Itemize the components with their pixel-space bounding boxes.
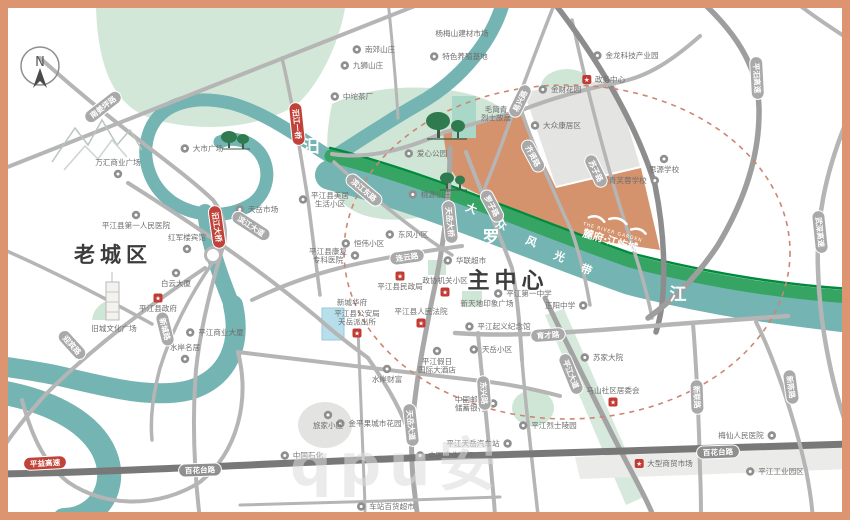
poi: 平江县民政局★: [377, 272, 423, 292]
poi-label: 金平果城市花园: [348, 418, 401, 428]
poi-label: 中坨茶厂: [343, 91, 374, 101]
poi-marker-dot-icon: [344, 242, 347, 245]
roundabout: [206, 248, 221, 263]
river-name-char: 罗: [483, 228, 500, 248]
poi-marker-dot-icon: [472, 348, 475, 351]
poi-label: 桃源山庄: [421, 189, 452, 199]
poi: 红军楼宾馆: [168, 232, 206, 253]
star-glyph-icon: ★: [354, 330, 360, 338]
poi-label: 平江工业园区: [758, 466, 804, 476]
poi-label: 颐青芙蓉学校: [601, 175, 647, 185]
poi-marker-dot-icon: [436, 350, 439, 353]
poi-marker-dot-icon: [433, 55, 436, 58]
poi: 天岳小区: [470, 344, 513, 354]
poi-label: 苏家大院: [593, 352, 624, 362]
poi: 政务中心★: [582, 74, 625, 84]
poi-label: 大众康居区: [543, 120, 581, 130]
road-pill-label: 百花台路: [703, 446, 734, 457]
poi: 爱心公园: [405, 149, 448, 158]
poi: 新天地印象广场: [460, 298, 514, 308]
poi: 大市广场: [181, 143, 224, 153]
road-pill-label: 平益高速: [30, 457, 61, 469]
poi: 平江县第一人民医院: [102, 211, 171, 230]
poi-label: 平江假日国际大酒店: [418, 357, 456, 375]
poi: 金龙科技产业园: [593, 50, 658, 60]
road-pill: 平汨高速: [749, 56, 764, 99]
road-pill: 滨江大道: [230, 209, 273, 243]
poi-marker-dot-icon: [117, 173, 120, 176]
poi-label: 平江县人民法院: [394, 306, 448, 316]
poi-label: 平江县美居生活小区: [311, 190, 349, 209]
district-label: 老城区: [74, 243, 152, 267]
poi-label: 红军楼宾馆: [168, 232, 206, 242]
road-xinlian: [693, 324, 701, 520]
poi-label: 政协机关小区: [422, 275, 468, 285]
road-pill: 连云路: [389, 248, 425, 266]
road-pill: 平益高速: [23, 455, 66, 470]
poi-label: 平江县第一人民医院: [102, 220, 171, 230]
road-yingbin: [5, 268, 205, 445]
poi-label: 杨梅山建材市场: [435, 28, 489, 38]
poi-marker-dot-icon: [360, 505, 363, 508]
poi: 九狮山庄: [341, 60, 384, 70]
poi: 白云大厦: [161, 269, 192, 288]
poi-label: 东风小区: [398, 229, 429, 239]
poi-label: 平江县康复专科医院: [309, 246, 347, 265]
poi-label: 梅仙人民医院: [718, 430, 764, 440]
poi: 平江县政府★: [139, 294, 177, 314]
poi-label: 金龙科技产业园: [605, 50, 658, 60]
poi: 恒伟小区: [342, 238, 385, 248]
poi: 毛简青烈士故居: [481, 104, 512, 123]
poi: 特色养殖基地: [430, 51, 488, 61]
road-pill: 新城路: [155, 311, 176, 348]
poi-label: 白云大厦: [161, 278, 192, 288]
poi-marker-dot-icon: [653, 179, 656, 182]
watermark: qpu安: [290, 431, 504, 499]
road-pill: 武深高速: [811, 210, 828, 254]
road-pill: 迎宾路: [56, 328, 89, 362]
poi-marker-dot-icon: [333, 95, 336, 98]
park-northwest: [96, 8, 345, 127]
poi-label: 思源学校: [649, 164, 680, 174]
poi: 思源学校: [649, 155, 680, 174]
poi-marker-dot-icon: [354, 254, 357, 257]
poi-label: 平江县政府: [139, 303, 177, 313]
poi: 东风小区: [386, 229, 429, 239]
poi-marker-dot-icon: [327, 414, 330, 417]
poi-marker-dot-icon: [407, 152, 410, 155]
poi-label: 平江烈士陵园: [531, 420, 577, 430]
road-mid-south-horizontal: [238, 352, 560, 396]
poi-marker-dot-icon: [534, 124, 537, 127]
poi: 新城华府: [337, 297, 368, 307]
star-glyph-icon: ★: [584, 76, 590, 84]
poi-marker-dot-icon: [186, 248, 189, 251]
location-map: N THE RIVER GARDEN 麓府·江屿城 汨罗江大众风光带 老城区主中…: [0, 0, 850, 520]
road-pill: 东兴路: [476, 375, 491, 410]
poi-marker-dot-icon: [388, 233, 391, 236]
road-pill-label: 新联路: [692, 385, 703, 409]
poi: 华联超市: [444, 255, 487, 265]
poi-marker-dot-icon: [183, 147, 186, 150]
star-glyph-icon: ★: [610, 399, 616, 407]
star-glyph-icon: ★: [418, 320, 424, 328]
poi-label: 车站百货超市: [369, 501, 415, 511]
poi-label: 正阳中学: [545, 300, 576, 310]
poi-label: 金财花园: [551, 84, 581, 94]
star-glyph-icon: ★: [155, 295, 161, 303]
map-canvas: N THE RIVER GARDEN 麓府·江屿城 汨罗江大众风光带 老城区主中…: [0, 0, 850, 520]
poi-label: 政务中心: [595, 74, 626, 84]
star-glyph-icon: ★: [397, 273, 403, 281]
poi-marker-dot-icon: [386, 368, 389, 371]
poi-label: 新城华府: [337, 297, 368, 307]
poi: 平江商业大厦: [186, 327, 244, 337]
poi-label: 大型商贸市场: [647, 458, 693, 468]
poi-marker-dot-icon: [749, 470, 752, 473]
road-pill-label: 育才路: [536, 329, 560, 341]
poi-label: 平江商业大厦: [198, 327, 244, 337]
poi-label: 恒伟小区: [354, 238, 385, 248]
poi-marker-dot-icon: [583, 356, 586, 359]
poi-label: 马山社区居委会: [586, 385, 640, 395]
poi: 中坨茶厂: [331, 91, 374, 101]
road-pill: 百花台路: [696, 445, 739, 459]
river-name-char: 江: [670, 285, 687, 305]
poi-label: 九狮山庄: [353, 60, 384, 70]
poi-marker-dot-icon: [283, 454, 286, 457]
poi: 杨梅山建材市场: [435, 28, 489, 38]
poi: 平江县人民法院★: [394, 306, 448, 328]
road-xinchen: [756, 322, 813, 520]
compass-n: N: [35, 55, 45, 70]
poi-label: 万汇商业广场: [95, 157, 141, 167]
poi-label: 平江县公安局天岳派出所: [334, 308, 380, 327]
poi: 苏家大院: [581, 352, 624, 362]
poi-label: 旧城文化广场: [91, 323, 137, 333]
poi-label: 天岳市场: [248, 204, 279, 214]
road-pill-label: 东兴路: [478, 381, 490, 405]
poi-marker-dot-icon: [446, 259, 449, 262]
poi: 万汇商业广场: [95, 157, 141, 178]
road-pill: 新联路: [690, 379, 704, 414]
poi: 平江县康复专科医院: [309, 246, 359, 265]
poi-marker-dot-icon: [663, 158, 666, 161]
maojianqing-site-block: [452, 96, 476, 138]
poi-label: 南郊山庄: [365, 44, 396, 54]
poi: 正阳中学: [545, 300, 588, 310]
poi-marker-dot-icon: [582, 304, 585, 307]
poi-marker-dot-icon: [355, 48, 358, 51]
poi-marker-dot-icon: [596, 54, 599, 57]
poi-label: 天岳小区: [482, 344, 513, 354]
star-glyph-icon: ★: [636, 460, 642, 468]
poi-label: 水岸财富: [372, 374, 402, 384]
road-pill-label: 平汨高速: [751, 63, 763, 94]
poi-marker-dot-icon: [184, 358, 187, 361]
poi-marker-dot-icon: [302, 198, 305, 201]
poi-marker-dot-icon: [522, 424, 525, 427]
poi: 南郊山庄: [353, 44, 396, 54]
poi-marker-dot-icon: [135, 214, 138, 217]
poi-marker-dot-icon: [238, 208, 241, 211]
poi: 旧城文化广场: [91, 323, 137, 333]
poi-label: 大市广场: [193, 143, 224, 153]
poi: 梅仙人民医院: [718, 430, 776, 440]
poi-label: 水岸名居: [170, 342, 201, 352]
poi-label: 平江第一中学: [506, 288, 552, 298]
poi-marker-dot-icon: [189, 331, 192, 334]
poi-label: 旅家小区: [313, 420, 344, 430]
poi-marker-dot-icon: [541, 88, 544, 91]
road-pill-label: 百花台路: [185, 464, 216, 475]
poi-marker-dot-icon: [506, 442, 509, 445]
poi-marker-dot-icon: [468, 325, 471, 328]
poi: 政协机关小区★: [422, 275, 468, 297]
poi-marker-dot-icon: [497, 292, 500, 295]
poi-marker-dot-icon: [492, 402, 495, 405]
culture-square-tower: [92, 272, 119, 320]
poi-marker-dot-icon: [343, 64, 346, 67]
poi: 平江起义纪念馆: [465, 321, 531, 331]
poi-label: 平江县民政局: [377, 281, 423, 291]
star-glyph-icon: ★: [442, 289, 448, 297]
poi-label: 毛简青烈士故居: [481, 104, 512, 123]
poi-marker-dot-icon: [175, 272, 178, 275]
poi-marker-dot-icon: [411, 193, 414, 196]
poi-label: 特色养殖基地: [442, 51, 488, 61]
road-pill: 南姜坪路: [82, 89, 124, 126]
poi-label: 新天地印象广场: [460, 298, 514, 308]
poi-marker-dot-icon: [770, 434, 773, 437]
road-pill: 育才路: [530, 327, 565, 342]
poi-label: 华联超市: [456, 255, 487, 265]
poi-label: 爱心公园: [417, 149, 447, 158]
poi-label: 平江起义纪念馆: [477, 321, 531, 331]
road-pill: 百花台路: [178, 463, 221, 477]
road-zhuzhongxin-s: [522, 360, 538, 515]
